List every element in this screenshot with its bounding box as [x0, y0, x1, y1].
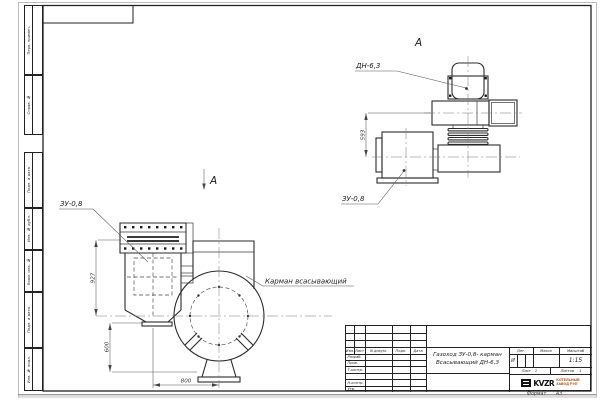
- left-stamp-column: Перв. примен. Справ. № Подп. и дата Инв.…: [24, 5, 43, 391]
- stamp-label: Инв. № подл.: [27, 356, 31, 383]
- drawing-sheet: 927 600 800 ЗУ-0,8: [0, 0, 600, 400]
- stamp-label-cell: Подп. и дата: [25, 293, 33, 347]
- dimension-593: 593: [361, 113, 432, 157]
- stamp-label-cell: Инв. № дубл.: [25, 209, 33, 249]
- format-value: А3: [556, 392, 562, 397]
- dim-927-value: 927: [91, 272, 97, 283]
- pocket-label: Карман всасывающий: [265, 278, 347, 286]
- sheet-cell: Лист 1: [509, 367, 550, 374]
- stamp-label: Инв. № дубл.: [27, 215, 31, 242]
- dim-593-value: 593: [361, 129, 367, 140]
- rev-col-ndocum: N докум.: [365, 347, 392, 354]
- lit-value: И: [509, 354, 517, 367]
- sheets-cell: Листов 1: [550, 367, 592, 374]
- stamp-label: Перв. примен.: [27, 26, 31, 55]
- rev-col-podp: Подп.: [392, 347, 410, 354]
- stamp-label: Подп. и дата: [27, 307, 31, 333]
- row-utv: Утв.: [346, 386, 367, 392]
- stamp-podp-data-2: Подп. и дата: [24, 292, 43, 348]
- row-nkontr: Н.контр.: [346, 379, 367, 386]
- title-block: Изм. Лист N докум. Подп. Дата Разраб. Пр…: [345, 325, 591, 391]
- aux-view: А: [341, 37, 522, 204]
- stamp-label-cell: Подп. и дата: [25, 153, 33, 207]
- sheet-label: Лист: [522, 369, 531, 373]
- document-title-line2: Всасывающий ДН-6,3: [436, 360, 499, 368]
- sheets-value: 1: [579, 369, 581, 373]
- company-name: КОТЕЛЬНЫЙ ЗАВОД РЭП: [556, 379, 579, 387]
- zu-main-label: ЗУ-0,8: [60, 200, 83, 208]
- company-name-line2: ЗАВОД РЭП: [556, 383, 579, 387]
- stamp-inv-podl: Инв. № подл.: [24, 348, 43, 391]
- dimension-600: 600: [105, 323, 198, 372]
- stamp-label-cell: Справ. №: [25, 76, 33, 134]
- document-title: Газоход ЗУ-0,8- карман Всасывающий ДН-6,…: [427, 348, 508, 372]
- main-view: 927 600 800 ЗУ-0,8: [59, 169, 354, 388]
- sheets-label: Листов: [561, 369, 574, 373]
- hopper-zu: [120, 223, 193, 326]
- stamp-label: Взам. инв. №: [27, 258, 31, 285]
- leader-pocket: Карман всасывающий: [246, 276, 354, 286]
- stamp-label-cell: Инв. № подл.: [25, 349, 33, 390]
- rev-col-data: Дата: [410, 347, 426, 354]
- duct-and-pocket-top: [372, 56, 522, 186]
- scale-value: 1:15: [559, 354, 592, 367]
- view-marker-a: А: [202, 169, 217, 190]
- stamp-inv-dubl: Инв. № дубл.: [24, 208, 43, 250]
- row-tkontr: Т.контр.: [346, 366, 367, 373]
- company-logo-text: KVZR: [533, 379, 554, 388]
- rev-col-list: Лист: [354, 347, 365, 354]
- dimension-800: 800: [153, 328, 219, 388]
- format-label: Формат А3: [498, 392, 591, 397]
- stamp-podp-data-1: Подп. и дата: [24, 152, 43, 208]
- format-word: Формат: [527, 392, 546, 397]
- zu-aux-label: ЗУ-0,8: [342, 195, 365, 203]
- dim-600-value: 600: [105, 341, 111, 352]
- stamp-label: Подп. и дата: [27, 167, 31, 193]
- stamp-vzam-inv: Взам. инв. №: [24, 250, 43, 292]
- stamp-sprav-no: Справ. №: [24, 75, 43, 135]
- rev-col-izm: Изм.: [346, 347, 354, 354]
- leader-zu-aux: ЗУ-0,8: [341, 169, 405, 204]
- dimension-927: 927: [91, 240, 122, 316]
- lit-header: Лит.: [509, 347, 533, 354]
- stamp-label-cell: Перв. примен.: [25, 6, 33, 74]
- dim-800-value: 800: [181, 379, 192, 385]
- kvzr-logo-icon: [521, 379, 531, 387]
- view-marker-letter: А: [209, 175, 217, 187]
- scale-header: Масштаб: [559, 347, 592, 354]
- stamp-label-cell: Взам. инв. №: [25, 251, 33, 291]
- pocket-scroll: [96, 228, 332, 388]
- stamp-perv-primen: Перв. примен.: [24, 5, 43, 75]
- document-title-line1: Газоход ЗУ-0,8- карман: [433, 352, 502, 360]
- sheet-value: 1: [535, 369, 537, 373]
- dn-label: ДН-6,3: [355, 62, 380, 70]
- company-cell: KVZR КОТЕЛЬНЫЙ ЗАВОД РЭП: [510, 375, 591, 391]
- aux-view-letter: А: [414, 37, 422, 49]
- stamp-label: Справ. №: [27, 95, 31, 115]
- designation-box: [43, 6, 133, 24]
- mass-header: Масса: [533, 347, 559, 354]
